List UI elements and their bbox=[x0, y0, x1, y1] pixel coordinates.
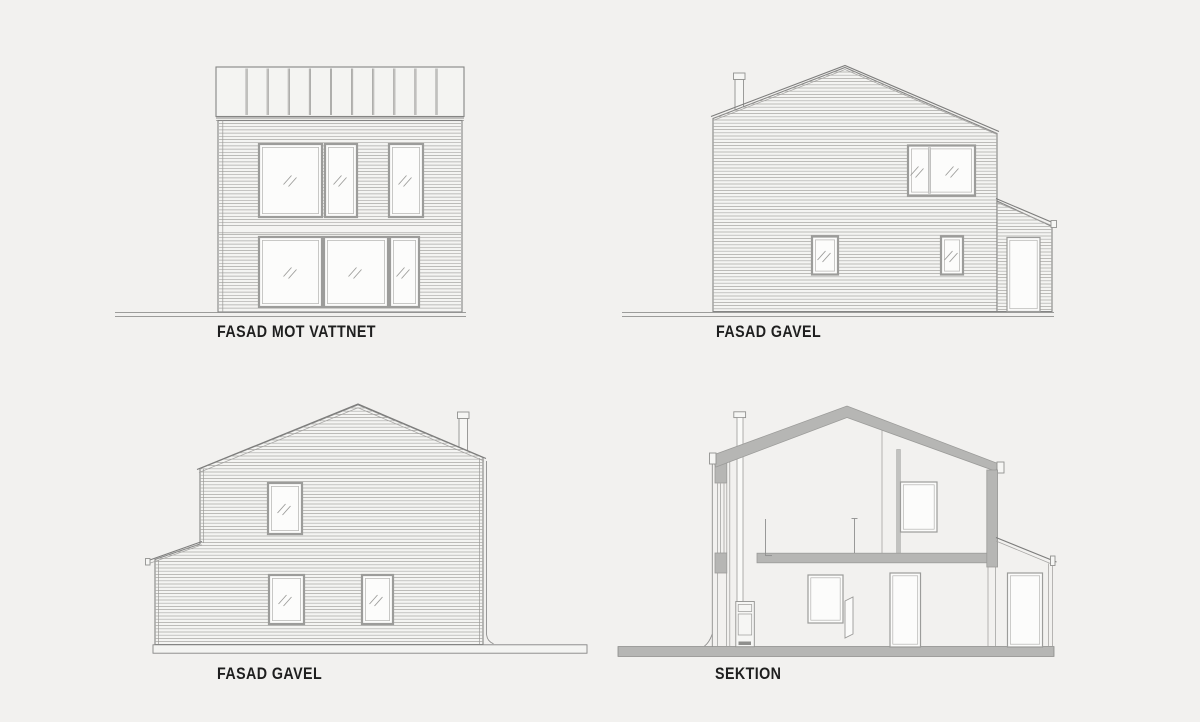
window bbox=[325, 144, 357, 217]
leanto-roof-edge bbox=[996, 541, 1054, 565]
roof-parapet-band bbox=[216, 67, 464, 117]
door-beyond bbox=[890, 573, 921, 647]
leanto-roof-edge bbox=[996, 538, 1057, 563]
ground-band bbox=[153, 645, 587, 653]
flue-cap bbox=[734, 412, 746, 418]
stove-base bbox=[739, 642, 752, 646]
right-wall-poche bbox=[987, 470, 998, 567]
window bbox=[812, 237, 838, 275]
view-fasad-gavel-east bbox=[622, 66, 1057, 317]
window bbox=[941, 237, 963, 275]
window bbox=[259, 144, 322, 217]
window bbox=[268, 483, 302, 534]
view-label-fasad-mot-vattnet: FASAD MOT VATTNET bbox=[217, 322, 376, 342]
leanto-fascia-end bbox=[1051, 556, 1056, 566]
window bbox=[908, 146, 975, 196]
window bbox=[259, 237, 322, 307]
chimney-cap bbox=[458, 412, 470, 419]
interior-wall bbox=[897, 450, 901, 554]
floor-slab bbox=[757, 553, 991, 563]
window bbox=[269, 575, 304, 624]
ground-slab bbox=[618, 647, 1054, 657]
window-beyond bbox=[901, 482, 938, 532]
leanto-fascia-end bbox=[1051, 221, 1057, 228]
downspout bbox=[487, 461, 494, 644]
drawing-sheet: FASAD MOT VATTNET FASAD GAVEL FASAD GAVE… bbox=[0, 0, 1200, 722]
chimney-cap bbox=[734, 73, 746, 80]
eave-fascia bbox=[710, 453, 717, 464]
window bbox=[389, 144, 423, 217]
leanto-door bbox=[1007, 238, 1040, 312]
window bbox=[390, 237, 419, 307]
view-label-fasad-gavel-west: FASAD GAVEL bbox=[217, 664, 322, 684]
eave-fascia bbox=[997, 462, 1004, 473]
leanto-fascia-end bbox=[146, 559, 151, 566]
downspout bbox=[705, 634, 713, 646]
view-label-sektion: SEKTION bbox=[715, 664, 781, 684]
window-beyond bbox=[808, 575, 843, 623]
open-door-leaf bbox=[845, 597, 853, 638]
gable-wall bbox=[155, 405, 483, 645]
view-fasad-gavel-west bbox=[146, 404, 588, 653]
window bbox=[362, 575, 393, 624]
window bbox=[324, 237, 388, 307]
view-sektion bbox=[618, 406, 1057, 656]
left-wall-poche bbox=[715, 553, 727, 573]
view-fasad-mot-vattnet bbox=[115, 67, 466, 317]
roof-poche bbox=[711, 406, 1001, 471]
drawings-canvas bbox=[0, 0, 1200, 722]
leanto-door bbox=[1008, 573, 1043, 647]
view-label-fasad-gavel-east: FASAD GAVEL bbox=[716, 322, 821, 342]
